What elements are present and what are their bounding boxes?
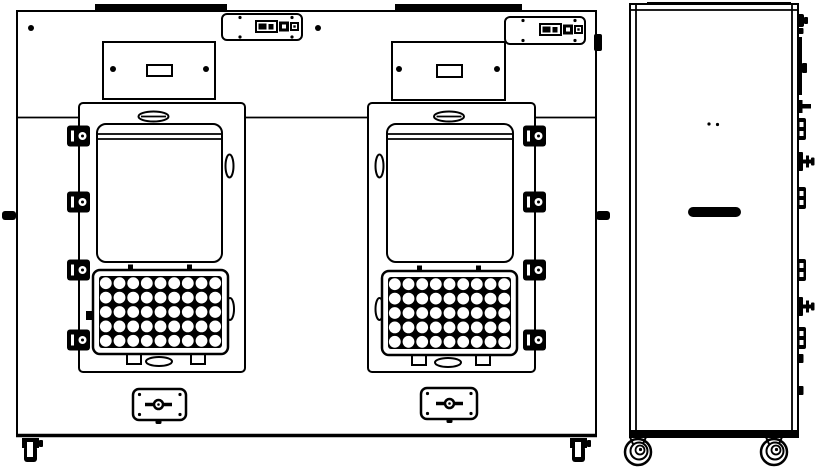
rivet — [178, 413, 181, 416]
vial-hole — [182, 306, 194, 318]
vial-hole — [444, 307, 456, 319]
hinge-pin-dot — [81, 339, 84, 342]
side-knob — [797, 14, 804, 27]
door-hinge — [67, 192, 90, 213]
rivet — [426, 392, 429, 395]
vial-hole — [114, 292, 126, 304]
door-hinge — [67, 330, 90, 351]
hinge-slot — [71, 335, 74, 346]
cabinet-drawing — [0, 0, 827, 468]
vial-hole — [430, 322, 442, 334]
vial-hole — [155, 321, 167, 333]
side-crossknob-cap — [811, 303, 815, 311]
vial-hole — [127, 277, 139, 289]
vial-hole — [471, 293, 483, 305]
hinge-slot — [71, 197, 74, 208]
side-hinge-slot — [800, 263, 804, 268]
side-bottom-band — [630, 430, 798, 437]
hinge-pin-dot — [537, 339, 540, 342]
vial-hole — [196, 321, 208, 333]
display-plate-right — [392, 42, 505, 100]
side-hinge-slot — [800, 191, 804, 196]
door-hinge — [67, 260, 90, 281]
vial-hole — [457, 336, 469, 348]
side-hinge — [797, 327, 806, 349]
vial-hole — [182, 335, 194, 347]
vial-hole — [430, 293, 442, 305]
rivet — [178, 393, 181, 396]
right-edge-tab — [596, 211, 610, 220]
side-strip-tab — [802, 63, 807, 73]
switch-mark — [269, 24, 274, 30]
hinge-pin-dot — [81, 135, 84, 138]
indicator-dot — [577, 28, 579, 30]
vial-hole — [389, 307, 401, 319]
side-tab — [798, 354, 804, 363]
vial-hole — [457, 322, 469, 334]
vial-hole — [209, 306, 221, 318]
technical-drawing-page — [0, 0, 827, 468]
vial-hole — [114, 306, 126, 318]
rivet — [469, 392, 472, 395]
cam-latch-tab — [447, 419, 453, 424]
switch-mark — [553, 27, 558, 33]
vial-hole — [416, 307, 428, 319]
vial-hole — [141, 335, 153, 347]
foot-nub — [39, 440, 43, 447]
vial-hole — [498, 307, 510, 319]
vial-hole — [127, 321, 139, 333]
hinge-pin-dot — [537, 135, 540, 138]
hinge-pin-dot — [537, 201, 540, 204]
vial-hole — [114, 321, 126, 333]
control-panel-right — [505, 17, 585, 44]
vial-hole — [100, 306, 112, 318]
vial-hole — [457, 307, 469, 319]
display-slot — [437, 65, 462, 77]
rivet — [138, 393, 141, 396]
foot-nub — [587, 440, 591, 447]
vial-hole — [155, 277, 167, 289]
vial-hole — [498, 293, 510, 305]
cam-hub-dot — [157, 403, 160, 406]
left-edge-tab — [2, 211, 16, 220]
vial-hole — [127, 335, 139, 347]
rivet — [573, 19, 576, 22]
vial-hole — [155, 292, 167, 304]
door-window — [97, 124, 222, 262]
cam-latch-left — [133, 389, 186, 424]
vial-hole — [444, 322, 456, 334]
vial-hole — [141, 277, 153, 289]
side-hinge-slot — [800, 331, 804, 336]
vial-hole — [155, 306, 167, 318]
side-tab — [798, 386, 804, 395]
caster-wheel — [625, 437, 651, 465]
rivet — [573, 39, 576, 42]
vial-hole — [416, 278, 428, 290]
side-crossknob-tick — [806, 156, 809, 168]
cam-latch-right — [421, 388, 477, 423]
vial-hole — [168, 292, 180, 304]
vial-hole — [403, 336, 415, 348]
foot-slot — [27, 442, 33, 457]
screw — [28, 25, 34, 31]
vial-hole — [114, 335, 126, 347]
rivet — [238, 35, 241, 38]
switch-mark — [259, 24, 267, 30]
vial-hole — [114, 277, 126, 289]
hinge-pin-dot — [81, 269, 84, 272]
vial-hole — [498, 278, 510, 290]
switch-mark — [543, 27, 551, 33]
vial-hole — [498, 336, 510, 348]
top-vent-bar-right — [395, 4, 522, 11]
vial-hole — [485, 322, 497, 334]
vial-hole — [389, 278, 401, 290]
screw — [494, 66, 500, 72]
vial-hole — [430, 278, 442, 290]
side-knob-nub — [804, 17, 808, 24]
side-bracket-arm — [800, 104, 811, 109]
vial-hole — [471, 322, 483, 334]
rivet — [138, 413, 141, 416]
vial-hole — [209, 335, 221, 347]
vial-hole — [100, 292, 112, 304]
indicator-dot — [293, 25, 295, 27]
control-panel-left — [222, 14, 302, 40]
vial-hole — [403, 293, 415, 305]
vial-hole — [485, 336, 497, 348]
side-dot — [707, 122, 710, 125]
side-casters — [625, 437, 787, 465]
foot-slot — [575, 442, 581, 457]
front-view — [2, 4, 610, 462]
rivet — [521, 39, 524, 42]
vial-hole — [155, 335, 167, 347]
hinge-pin-dot — [81, 201, 84, 204]
vial-hole — [100, 335, 112, 347]
hinge-slot — [527, 197, 530, 208]
side-hinge-slot — [800, 200, 804, 205]
cam-hub-dot — [448, 402, 451, 405]
vial-hole — [141, 321, 153, 333]
rivet — [238, 16, 241, 19]
side-edge-fittings — [797, 14, 815, 395]
door-hinge — [523, 260, 546, 281]
vial-hole — [471, 307, 483, 319]
screw — [315, 25, 321, 31]
vial-hole — [209, 321, 221, 333]
vial-hole — [182, 321, 194, 333]
vial-hole — [196, 306, 208, 318]
vial-hole-grid-left — [100, 277, 221, 346]
screw — [396, 66, 402, 72]
hinge-slot — [527, 131, 530, 142]
vial-hole — [471, 278, 483, 290]
top-vent-bar-left — [95, 4, 227, 11]
power-switch-assembly — [540, 24, 582, 35]
vial-hole — [389, 322, 401, 334]
vial-hole — [457, 278, 469, 290]
vial-hole — [100, 321, 112, 333]
side-hinge-slot — [800, 340, 804, 345]
side-crossknob-cap — [811, 158, 815, 166]
vial-hole — [168, 277, 180, 289]
side-hinge — [797, 118, 806, 140]
vial-hole — [209, 292, 221, 304]
side-view — [625, 2, 815, 465]
leveling-foot-right — [570, 438, 591, 462]
side-crossknob-tick — [806, 301, 809, 313]
caster-hub — [639, 448, 642, 451]
hinge-slot — [71, 265, 74, 276]
screw — [203, 66, 209, 72]
rocker-window — [566, 28, 570, 32]
side-tab — [798, 28, 804, 34]
vial-hole — [182, 277, 194, 289]
rivet — [521, 19, 524, 22]
rivet — [290, 16, 293, 19]
side-crossknob-bar — [797, 152, 803, 171]
vial-hole — [403, 322, 415, 334]
vial-hole — [168, 335, 180, 347]
vial-hole — [416, 336, 428, 348]
side-handle — [688, 207, 741, 217]
vial-hole — [430, 307, 442, 319]
hinge-slot — [71, 131, 74, 142]
vial-hole — [389, 336, 401, 348]
vial-hole — [196, 335, 208, 347]
vial-hole — [168, 321, 180, 333]
hinge-slot — [527, 265, 530, 276]
vial-hole — [444, 278, 456, 290]
door-hinge — [523, 330, 546, 351]
rivet — [290, 35, 293, 38]
cam-latch-tab — [156, 420, 162, 425]
rivet — [469, 412, 472, 415]
hinge-slot — [527, 335, 530, 346]
vial-hole — [485, 278, 497, 290]
side-strip — [799, 37, 803, 95]
vial-hole — [196, 292, 208, 304]
caster-hub — [775, 448, 778, 451]
power-switch-assembly — [256, 21, 298, 32]
vial-hole — [127, 292, 139, 304]
side-cabinet-outline — [630, 4, 798, 437]
vial-hole — [389, 293, 401, 305]
vial-hole — [430, 336, 442, 348]
rocker-window — [282, 25, 286, 29]
vial-hole — [403, 307, 415, 319]
vial-hole — [416, 293, 428, 305]
vial-hole — [168, 306, 180, 318]
vial-hole — [498, 322, 510, 334]
door-hinge — [523, 126, 546, 147]
vial-hole-grid-right — [389, 278, 510, 347]
side-hinge-slot — [800, 122, 804, 127]
caster-wheel — [761, 437, 787, 465]
door-hinge — [67, 126, 90, 147]
door-hinge — [523, 192, 546, 213]
display-slot — [147, 65, 172, 76]
vial-hole — [471, 336, 483, 348]
side-hinge — [797, 187, 806, 209]
vial-hole — [457, 293, 469, 305]
hinge-pin-dot — [537, 269, 540, 272]
vial-hole — [196, 277, 208, 289]
vial-hole — [100, 277, 112, 289]
vial-hole — [444, 336, 456, 348]
door-window — [387, 124, 513, 262]
vial-hole — [416, 322, 428, 334]
leveling-foot-left — [22, 438, 43, 462]
vial-hole — [141, 292, 153, 304]
side-crossknob-bar — [797, 297, 803, 316]
display-plate-left — [103, 42, 215, 99]
vial-hole — [182, 292, 194, 304]
vial-hole — [403, 278, 415, 290]
right-top-tab — [594, 34, 602, 51]
vial-hole — [485, 307, 497, 319]
side-hinge-slot — [800, 272, 804, 277]
rivet — [426, 412, 429, 415]
side-hinge — [797, 259, 806, 281]
vial-hole — [127, 306, 139, 318]
vial-hole — [141, 306, 153, 318]
vial-hole — [444, 293, 456, 305]
side-hinge-slot — [800, 131, 804, 136]
side-dot — [716, 123, 719, 126]
screw — [110, 66, 116, 72]
vial-hole — [485, 293, 497, 305]
vial-hole — [209, 277, 221, 289]
